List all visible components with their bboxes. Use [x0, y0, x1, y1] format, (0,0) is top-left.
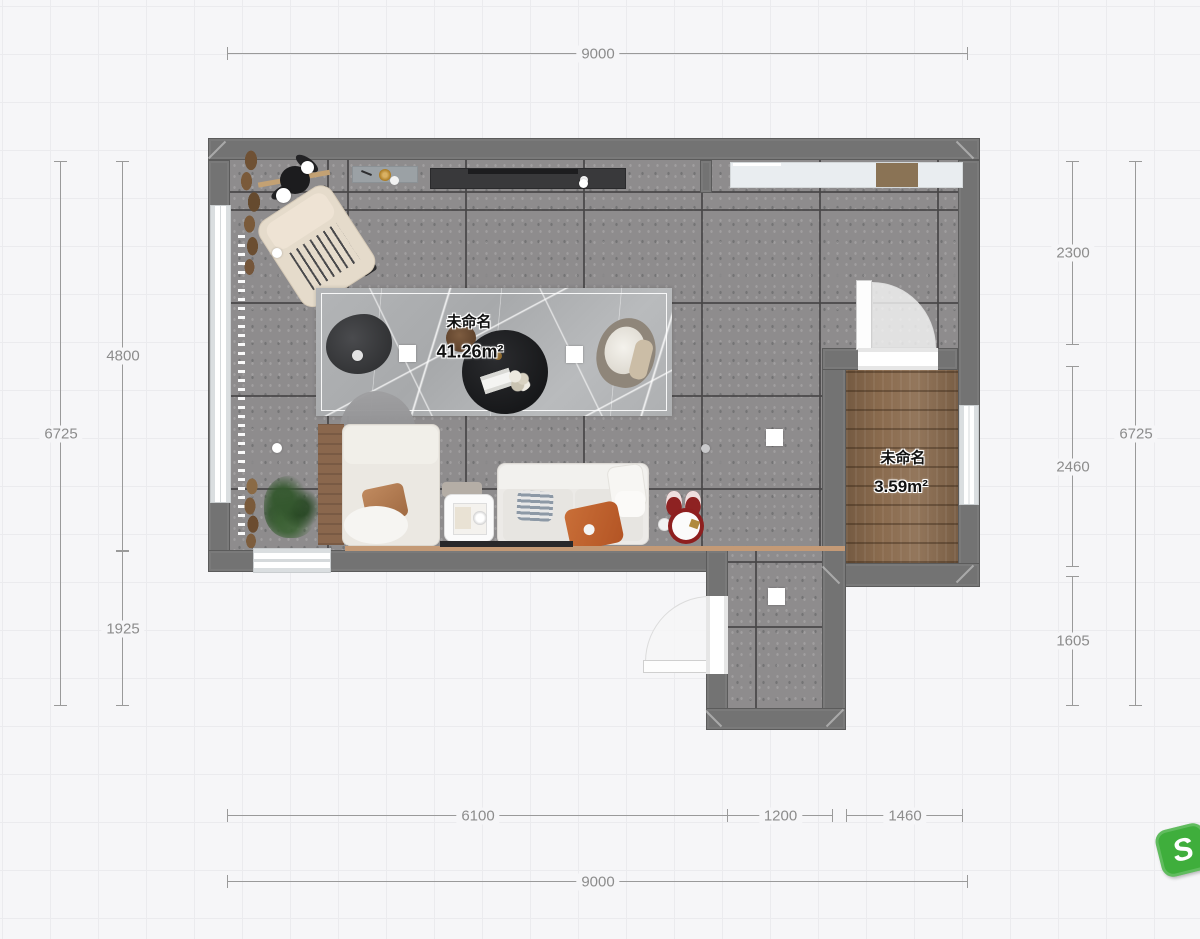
chaise-wood-side	[318, 424, 344, 545]
dim-tick	[54, 705, 67, 706]
wall-light[interactable]	[701, 444, 710, 453]
pouf-ball-decor	[352, 350, 363, 361]
floor-marker[interactable]	[768, 588, 785, 605]
corridor-floor[interactable]	[728, 550, 824, 708]
dim-label: 1605	[1051, 633, 1094, 650]
entrance-door-swing-arc	[645, 596, 710, 662]
dim-label: 6100	[456, 808, 499, 825]
floor-marker[interactable]	[766, 429, 783, 446]
table-bouquet	[506, 368, 532, 392]
dim-tick	[227, 875, 228, 888]
dim-tick	[727, 809, 728, 822]
storage-room-area-label[interactable]: 3.59m²	[874, 477, 928, 497]
wall-corridor-bottom[interactable]	[706, 708, 846, 730]
wall-right[interactable]	[958, 160, 980, 587]
throw-dot	[583, 523, 596, 536]
dimension-right-seg-3: 1605	[1072, 576, 1073, 706]
dim-tick	[967, 875, 968, 888]
dim-tick	[832, 809, 833, 822]
dim-label: 4800	[101, 348, 144, 365]
dimension-bottom-total: 9000	[228, 881, 968, 882]
entrance-door-threshold[interactable]	[706, 596, 728, 674]
storage-door-leaf[interactable]	[856, 280, 872, 350]
dim-tick	[962, 809, 963, 822]
tea-table[interactable]	[666, 508, 706, 546]
dimension-right-total: 6725	[1135, 161, 1136, 706]
wall-light[interactable]	[579, 179, 588, 188]
built-in-closet[interactable]	[730, 162, 963, 188]
dim-tick	[1066, 566, 1079, 567]
dim-label: 2460	[1051, 458, 1094, 475]
storage-door-threshold[interactable]	[858, 348, 938, 370]
chaise-back	[344, 426, 438, 464]
dimension-left-seg-1: 4800	[122, 161, 123, 551]
white-pillow	[615, 491, 645, 517]
dim-label: 6725	[39, 425, 82, 442]
wall-storage-left[interactable]	[822, 348, 846, 730]
dim-tick	[54, 161, 67, 162]
app-watermark-logo: S	[1153, 821, 1200, 880]
tray-dish	[473, 511, 487, 525]
living-room-name-label[interactable]: 未命名	[446, 311, 491, 332]
wood-ledge[interactable]	[345, 546, 845, 551]
wall-light[interactable]	[272, 248, 282, 258]
chaise-sofa[interactable]	[318, 424, 442, 547]
closet-highlight	[733, 163, 781, 166]
tv-console[interactable]	[430, 168, 626, 189]
dimension-bottom-seg-3: 1460	[847, 815, 963, 816]
potted-plant[interactable]	[264, 476, 318, 538]
tv-screen	[468, 169, 578, 174]
window-bottom-wall[interactable]	[253, 548, 331, 573]
dim-tick	[1066, 576, 1079, 577]
wall-stub-closet[interactable]	[700, 160, 712, 193]
dim-label: 2300	[1051, 245, 1094, 262]
entrance-door-leaf[interactable]	[643, 660, 711, 673]
floor-marker[interactable]	[566, 346, 583, 363]
dim-label: 9000	[576, 46, 619, 63]
storage-room-name-label[interactable]: 未命名	[880, 447, 925, 468]
wall-shelf[interactable]	[352, 166, 418, 183]
soundbar[interactable]	[440, 541, 573, 547]
fan-bulb	[276, 188, 291, 203]
dim-tick	[1066, 366, 1079, 367]
dimension-top-total: 9000	[228, 53, 968, 54]
dim-tick	[116, 551, 129, 552]
dim-tick	[116, 705, 129, 706]
shelf-decor	[390, 176, 399, 185]
striped-pillow	[516, 490, 554, 522]
dim-tick	[1129, 705, 1142, 706]
living-room-area-label[interactable]: 41.26m²	[436, 342, 503, 363]
tray-pad	[455, 507, 471, 529]
side-table-tray[interactable]	[444, 494, 494, 542]
dim-label: 1925	[101, 620, 144, 637]
window-left-wall[interactable]	[210, 205, 231, 503]
floor-marker[interactable]	[399, 345, 416, 362]
dim-label: 1200	[759, 808, 802, 825]
dim-tick	[116, 161, 129, 162]
dimension-left-total: 6725	[60, 161, 61, 706]
dimension-bottom-seg-2: 1200	[728, 815, 833, 816]
window-storage-right[interactable]	[959, 405, 979, 505]
dim-label: 6725	[1114, 425, 1157, 442]
wall-light[interactable]	[272, 443, 282, 453]
main-sofa[interactable]	[497, 463, 649, 545]
dimension-right-seg-1: 2300	[1072, 161, 1073, 345]
watermark-letter: S	[1169, 830, 1198, 870]
dim-tick	[846, 809, 847, 822]
chaise-cushion	[344, 506, 408, 544]
dimension-right-seg-2: 2460	[1072, 366, 1073, 567]
dim-label: 1460	[883, 808, 926, 825]
shelf-decor	[361, 170, 372, 176]
fan-bulb	[301, 161, 314, 174]
dim-tick	[227, 809, 228, 822]
dimension-bottom-seg-1: 6100	[228, 815, 728, 816]
dim-tick	[967, 47, 968, 60]
dried-stem-plant[interactable]	[242, 478, 262, 548]
dim-label: 9000	[576, 874, 619, 891]
dim-tick	[1129, 161, 1142, 162]
closet-door-panel[interactable]	[876, 163, 918, 187]
floorplan-canvas: 未命名 41.26m² 未命名 3.59m² 9000 6100 1200 14…	[0, 0, 1200, 939]
dim-tick	[227, 47, 228, 60]
dim-tick	[1066, 161, 1079, 162]
dim-tick	[1066, 705, 1079, 706]
dimension-left-seg-2: 1925	[122, 551, 123, 706]
dim-tick	[1066, 344, 1079, 345]
